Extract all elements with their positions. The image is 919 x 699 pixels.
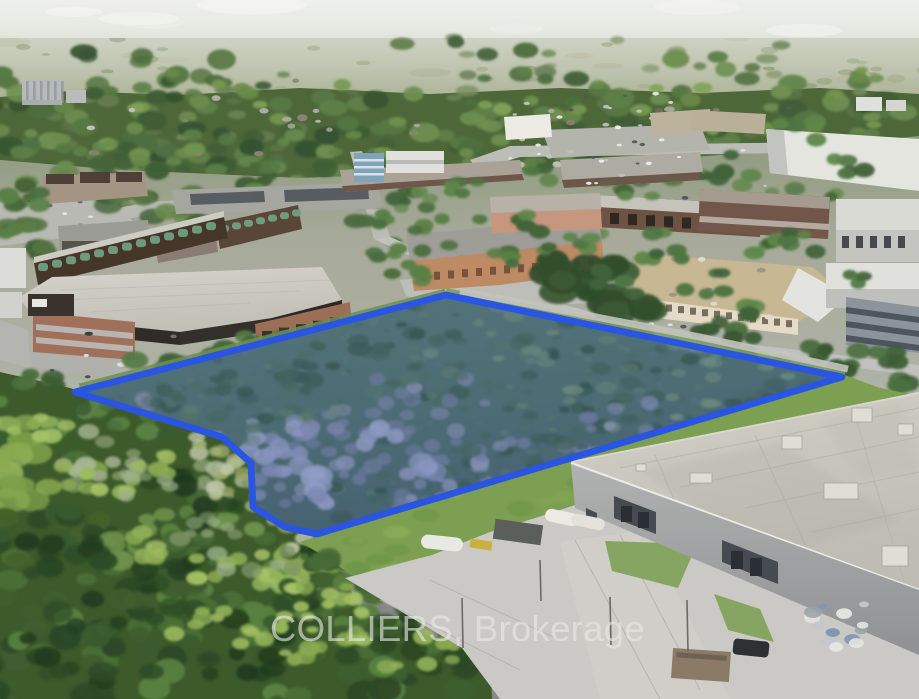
svg-text:COLLIERS, Brokerage: COLLIERS, Brokerage [270,608,645,649]
